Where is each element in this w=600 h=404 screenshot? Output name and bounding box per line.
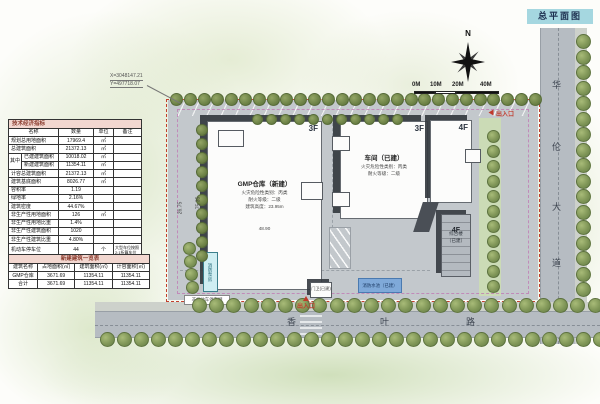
tree-icon: [270, 332, 285, 347]
tree-icon: [576, 189, 591, 204]
scale-segment: [414, 91, 435, 94]
tree-icon: [576, 267, 591, 282]
road-centerline: [95, 325, 600, 326]
tree-icon: [266, 114, 277, 125]
scale-label: 10M: [430, 82, 442, 88]
tree-icon: [372, 332, 387, 347]
stair-annex: [301, 182, 323, 200]
tree-icon: [278, 298, 293, 313]
tree-icon: [308, 114, 319, 125]
tree-icon: [364, 298, 379, 313]
stair-annex: [465, 149, 481, 163]
tree-icon: [536, 298, 551, 313]
road-name-char: 路: [466, 315, 475, 328]
tree-icon: [588, 298, 600, 313]
tree-icon: [336, 114, 347, 125]
tree-icon: [378, 114, 389, 125]
tree-icon: [134, 332, 149, 347]
tree-icon: [117, 332, 132, 347]
drawing-title-banner: 总平面图: [527, 9, 593, 24]
column-header: 备注: [114, 128, 142, 136]
tree-icon: [423, 332, 438, 347]
table-row: 非生产性建筑比重4.80%: [9, 236, 142, 244]
tree-icon: [502, 298, 517, 313]
tree-icon: [515, 93, 528, 106]
tree-icon: [519, 298, 534, 313]
tree-icon: [487, 280, 500, 293]
tree-icon: [508, 332, 523, 347]
entrance-label-south: 出入口: [297, 301, 315, 310]
tree-icon: [487, 250, 500, 263]
tree-icon: [542, 332, 557, 347]
tree-icon: [236, 332, 251, 347]
tree-icon: [196, 208, 208, 220]
tree-icon: [196, 166, 208, 178]
scale-label: 40M: [480, 82, 492, 88]
table-row: 建筑密度44.67%: [9, 203, 142, 211]
tree-icon: [350, 114, 361, 125]
table-title: 技术经济指标: [9, 120, 142, 129]
table-row: 规划总用地面积17969.4㎡: [9, 137, 142, 145]
tree-icon: [487, 145, 500, 158]
table-row: 合计3671.6911354.1111354.11: [9, 280, 150, 288]
tree-icon: [392, 114, 403, 125]
tree-icon: [253, 93, 266, 106]
scale-segment: [435, 91, 456, 94]
building-status-label: （已建）: [442, 238, 470, 245]
road-name-char: 伦: [552, 140, 561, 153]
guard-house: 门卫(已建): [310, 282, 332, 298]
table-row: 其中已建建筑面积10018.02㎡: [9, 153, 142, 161]
tree-icon: [355, 332, 370, 347]
tree-icon: [487, 190, 500, 203]
tree-icon: [308, 93, 321, 106]
column-header: 建筑面积(㎡): [75, 263, 112, 271]
tree-icon: [336, 93, 349, 106]
column-header: 计容面积(㎡): [112, 263, 149, 271]
tree-icon: [252, 114, 263, 125]
scale-label: 0M: [412, 82, 420, 88]
tree-icon: [576, 34, 591, 49]
tree-icon: [525, 332, 540, 347]
table-row: 非生产性建筑面积1020: [9, 227, 142, 235]
tree-icon: [184, 255, 197, 268]
road-name-char: 华: [552, 78, 561, 91]
tree-icon: [196, 124, 208, 136]
tree-icon: [487, 265, 500, 278]
road-name-char: 道: [552, 256, 561, 269]
table-row: 新建建筑面积11354.11㎡: [9, 161, 142, 169]
tree-icon: [287, 332, 302, 347]
fire-class-label: 火灾危险性类别：丙类: [341, 164, 427, 171]
scale-segment: [456, 91, 499, 94]
tree-icon: [487, 205, 500, 218]
table-row: 绿地率2.16%: [9, 194, 142, 202]
north-compass: N: [450, 30, 486, 86]
entrance-marker-icon: [489, 110, 494, 116]
tree-icon: [576, 236, 591, 251]
building-gmp-warehouse: 3F GMP仓库（新建） 火灾危险性类别：丙类 耐火等级：二级 建筑高度：23.…: [207, 121, 322, 290]
tree-icon: [487, 130, 500, 143]
group-cell: 其中: [9, 153, 22, 170]
stair-annex: [218, 130, 244, 147]
entrance-label-east: 出入口: [496, 109, 514, 118]
tree-icon: [219, 332, 234, 347]
floor-count-label: 3F: [309, 124, 318, 133]
tree-icon: [389, 332, 404, 347]
tree-icon: [185, 332, 200, 347]
tree-icon: [196, 250, 208, 262]
tree-icon: [267, 93, 280, 106]
tree-icon: [576, 143, 591, 158]
floor-count-label: 4F: [459, 123, 468, 132]
tree-icon: [576, 174, 591, 189]
tree-icon: [433, 298, 448, 313]
tree-icon: [196, 138, 208, 150]
tree-icon: [593, 332, 600, 347]
table-row: 计容总建筑面积21372.13㎡: [9, 170, 142, 178]
coordinate-y: Y=497718.07: [110, 81, 143, 89]
tree-icon: [576, 282, 591, 297]
fire-rating-label: 耐火等级：二级: [341, 171, 427, 178]
road-hualun-avenue: [540, 28, 576, 344]
column-header: 建筑名称: [9, 263, 38, 271]
tree-icon: [261, 298, 276, 313]
scale-label: 20M: [452, 82, 464, 88]
coordinate-x: X=3048147.21: [110, 73, 143, 81]
coordinate-callout: X=3048147.21 Y=497718.07: [110, 73, 143, 88]
tree-icon: [416, 298, 431, 313]
building-name-label: 车间（已建）: [341, 154, 427, 164]
tree-icon: [391, 93, 404, 106]
tree-icon: [576, 220, 591, 235]
scale-bar: 0M 10M 20M 40M: [412, 82, 504, 96]
tree-icon: [196, 222, 208, 234]
tree-icon: [457, 332, 472, 347]
table-row: 非生产性用地面积126㎡: [9, 211, 142, 219]
tree-icon: [198, 93, 211, 106]
tree-icon: [576, 251, 591, 266]
floor-count-label: 3F: [415, 124, 424, 133]
table-row: 非生产性用地比重1.4%: [9, 219, 142, 227]
column-header: 单位: [94, 128, 114, 136]
tree-icon: [347, 298, 362, 313]
site-plan-canvas: 华 伦 大 道 香 叶 路 3F GMP仓库（新建） 火灾危险性类别：丙类 耐火…: [0, 0, 600, 404]
tree-icon: [440, 332, 455, 347]
table-row: 总建筑面积21372.13㎡: [9, 145, 142, 153]
tree-icon: [192, 298, 207, 313]
dimension-label: 26.75: [177, 202, 183, 215]
tree-icon: [151, 332, 166, 347]
building-east-wing: 4F: [430, 120, 472, 203]
tree-icon: [364, 114, 375, 125]
tree-icon: [576, 65, 591, 80]
tree-icon: [576, 205, 591, 220]
tree-icon: [322, 93, 335, 106]
table-row: GMP仓库3671.6911354.1111354.11: [9, 272, 150, 280]
dimension-label: 48.90: [259, 226, 271, 231]
column-header: 数量: [59, 128, 94, 136]
tree-icon: [322, 114, 333, 125]
dimension-label: 75.35: [195, 197, 201, 210]
north-label: N: [450, 30, 486, 38]
tree-icon: [244, 298, 259, 313]
tree-icon: [576, 81, 591, 96]
tree-icon: [183, 242, 196, 255]
tree-icon: [184, 93, 197, 106]
tree-icon: [196, 236, 208, 248]
tree-icon: [304, 332, 319, 347]
tree-icon: [450, 298, 465, 313]
tree-icon: [239, 93, 252, 106]
tree-icon: [576, 96, 591, 111]
tech-indicators-table: 技术经济指标 名称 数量 单位 备注 规划总用地面积17969.4㎡ 总建筑面积…: [8, 119, 142, 266]
road-name-char: 香: [287, 315, 296, 328]
building-height-label: 建筑高度：23.95m: [208, 204, 321, 211]
tree-icon: [559, 332, 574, 347]
fire-water-pool: 消防水池（已建）: [358, 278, 402, 293]
stair-annex: [332, 136, 350, 151]
tree-icon: [487, 160, 500, 173]
tree-icon: [100, 332, 115, 347]
tree-icon: [576, 332, 591, 347]
tree-icon: [196, 152, 208, 164]
tree-icon: [491, 332, 506, 347]
tree-icon: [576, 127, 591, 142]
table-row: 容积率1.19: [9, 186, 142, 194]
tree-icon: [196, 180, 208, 192]
road-centerline: [558, 28, 559, 344]
tree-icon: [406, 332, 421, 347]
road-name-char: 叶: [380, 315, 389, 328]
tree-icon: [186, 281, 199, 294]
tree-icon: [576, 158, 591, 173]
column-header: 占地面积(㎡): [38, 263, 75, 271]
tree-icon: [330, 298, 345, 313]
column-header: 名称: [9, 128, 59, 136]
stair-annex: [332, 192, 350, 207]
new-buildings-table: 新建建筑一览表 建筑名称 占地面积(㎡) 建筑面积(㎡) 计容面积(㎡) GMP…: [8, 254, 150, 289]
building-workshop: 3F 车间（已建） 火灾危险性类别：丙类 耐火等级：二级: [340, 121, 428, 219]
tree-icon: [576, 112, 591, 127]
tree-icon: [474, 332, 489, 347]
tree-icon: [338, 332, 353, 347]
tree-icon: [280, 114, 291, 125]
tree-icon: [294, 114, 305, 125]
tree-icon: [168, 332, 183, 347]
table-row: 建筑基底面积8026.77㎡: [9, 178, 142, 186]
tree-icon: [202, 332, 217, 347]
compass-rose-icon: [451, 38, 485, 82]
building-complex: 4F 综合楼 （已建）: [441, 214, 471, 277]
tree-icon: [487, 175, 500, 188]
table-title: 新建建筑一览表: [9, 255, 150, 264]
tree-icon: [185, 268, 198, 281]
tree-icon: [377, 93, 390, 106]
tree-icon: [576, 50, 591, 65]
tree-icon: [253, 332, 268, 347]
road-name-char: 大: [552, 200, 561, 213]
tree-icon: [321, 332, 336, 347]
tree-icon: [487, 220, 500, 233]
tree-icon: [487, 235, 500, 248]
tree-icon: [529, 93, 542, 106]
building-name-label: 综合楼: [442, 231, 470, 238]
